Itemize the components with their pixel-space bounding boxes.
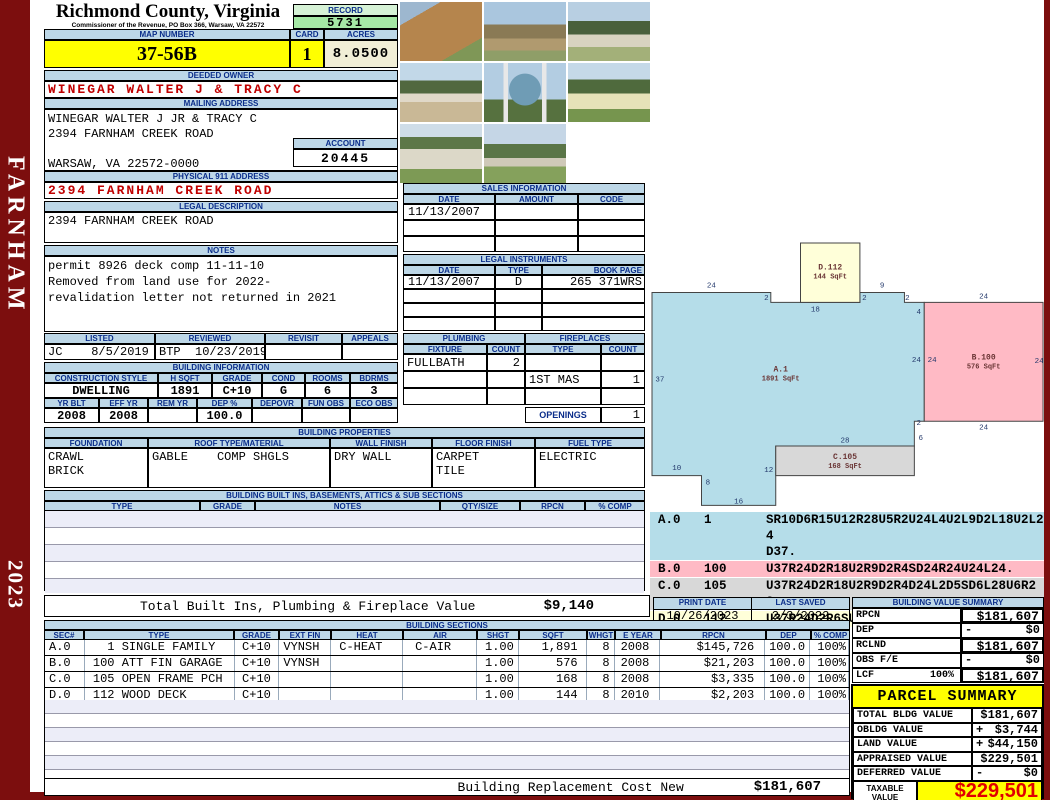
fireplace-row bbox=[525, 354, 645, 371]
notes-header: NOTES bbox=[44, 245, 398, 256]
parcel-summary-rows: TOTAL BLDG VALUE $181,607 OBLDG VALUE + … bbox=[853, 708, 1042, 781]
sales-amount bbox=[495, 220, 578, 236]
svg-text:24: 24 bbox=[979, 425, 989, 433]
sketch-code-text: SR10D6R15U12R28U5R2U24L4U2L9D2L18U2L24 D… bbox=[766, 512, 1044, 560]
instrument-type bbox=[495, 289, 542, 303]
instrument-date bbox=[403, 289, 495, 303]
review-value-cell: BTP 10/23/2019 bbox=[155, 344, 265, 360]
building-info-row2-headers: YR BLT EFF YR REM YR DEP % DEPOVR FUN OB… bbox=[44, 398, 398, 408]
built-ins-header: BUILDING BUILT INS, BASEMENTS, ATTICS & … bbox=[44, 490, 645, 501]
section-eyear: 2008 bbox=[615, 640, 661, 655]
building-section-row: A.0 1 SINGLE FAMILY C+10 VYNSH C-HEAT C-… bbox=[45, 640, 849, 656]
svg-text:12: 12 bbox=[764, 467, 773, 475]
parcel-row-label: APPRAISED VALUE bbox=[853, 752, 972, 767]
photo-thumbnail[interactable] bbox=[400, 124, 482, 183]
section-shgt: 1.00 bbox=[477, 672, 519, 687]
section-sqft: 1,891 bbox=[519, 640, 587, 655]
legal-description-header: LEGAL DESCRIPTION bbox=[44, 201, 398, 212]
notes-line: Removed from land use for 2022- bbox=[48, 275, 397, 291]
building-info-value-cell bbox=[252, 408, 302, 423]
year-label: 2023 bbox=[0, 530, 30, 640]
building-info-value-cell: 100.0 bbox=[197, 408, 252, 423]
svg-text:1891 SqFt: 1891 SqFt bbox=[762, 376, 800, 384]
sales-code bbox=[578, 236, 645, 252]
building-info-value-cell bbox=[302, 408, 350, 423]
section-comp: 100% bbox=[810, 656, 849, 671]
built-ins-header-cell: NOTES bbox=[255, 501, 440, 511]
sales-code bbox=[578, 220, 645, 236]
instruments-row bbox=[403, 317, 645, 331]
built-ins-header-cell: GRADE bbox=[200, 501, 255, 511]
plumbing-fixture: FULLBATH bbox=[403, 354, 487, 371]
section-whgt: 8 bbox=[587, 640, 615, 655]
sales-header-cell: CODE bbox=[578, 194, 645, 204]
sales-row bbox=[403, 220, 645, 236]
acres-header: ACRES bbox=[324, 29, 398, 40]
review-value-cell: JC 8/5/2019 bbox=[44, 344, 155, 360]
section-rpcn: $3,335 bbox=[660, 672, 765, 687]
value-summary-pct: 100% bbox=[930, 669, 954, 682]
sales-information-header: SALES INFORMATION bbox=[403, 183, 645, 194]
fixture-header: FIXTURE bbox=[403, 344, 487, 354]
value-summary-label: DEP bbox=[856, 624, 874, 637]
building-info-value-cell: 3 bbox=[350, 383, 398, 398]
review-header-cell: REVISIT bbox=[265, 333, 342, 344]
section-shgt: 1.00 bbox=[477, 640, 519, 655]
instruments-row bbox=[403, 289, 645, 303]
map-number-header: MAP NUMBER bbox=[44, 29, 290, 40]
building-info-row1-values: DWELLING 1891 C+10 G 6 3 bbox=[44, 383, 398, 398]
building-value-summary-rows: RPCN $181,607 DEP - $0 RCLND bbox=[852, 608, 1044, 683]
building-value-summary-header: BUILDING VALUE SUMMARY bbox=[852, 597, 1044, 608]
instrument-date bbox=[403, 303, 495, 317]
acres-value: 8.0500 bbox=[324, 40, 398, 68]
section-grade: C+10 bbox=[235, 656, 280, 671]
value-summary-row: OBS F/E - $0 bbox=[852, 653, 1044, 668]
svg-text:2: 2 bbox=[764, 295, 769, 303]
value-summary-amount: $181,607 bbox=[977, 640, 1039, 651]
account-value: 20445 bbox=[293, 149, 398, 167]
building-info-value-cell bbox=[148, 408, 197, 423]
physical-address-header: PHYSICAL 911 ADDRESS bbox=[44, 171, 398, 182]
svg-text:24: 24 bbox=[912, 357, 922, 365]
section-id: B.0 bbox=[45, 656, 85, 671]
section-extfin bbox=[279, 672, 331, 687]
built-ins-header-cell: % COMP bbox=[585, 501, 645, 511]
legal-instruments-header: LEGAL INSTRUMENTS bbox=[403, 254, 645, 265]
svg-text:24: 24 bbox=[707, 283, 717, 291]
sales-date bbox=[403, 236, 495, 252]
county-title-block: Richmond County, Virginia Commissioner o… bbox=[44, 2, 292, 29]
review-header-cell: LISTED bbox=[44, 333, 155, 344]
building-info-value-cell bbox=[350, 408, 398, 423]
building-sections-header-cell: % COMP bbox=[811, 630, 850, 640]
building-sketch: A.11891 SqFtB.100576 SqFtC.105168 SqFtD.… bbox=[650, 186, 1044, 512]
parcel-row-label: LAND VALUE bbox=[853, 737, 972, 752]
built-ins-total-row: Total Built Ins, Plumbing & Fireplace Va… bbox=[44, 595, 650, 617]
building-sections-header-cell: HEAT bbox=[331, 630, 403, 640]
value-summary-label: OBS F/E bbox=[856, 654, 898, 667]
svg-text:168 SqFt: 168 SqFt bbox=[828, 463, 862, 471]
section-heat bbox=[331, 656, 403, 671]
section-extfin: VYNSH bbox=[279, 656, 331, 671]
sketch-code-num: 1 bbox=[704, 512, 766, 560]
section-comp: 100% bbox=[810, 672, 849, 687]
parcel-row-amount: $3,744 bbox=[995, 724, 1038, 737]
built-ins-col-headers: TYPE GRADE NOTES QTY/SIZE RPCN % COMP bbox=[44, 501, 645, 511]
svg-text:D.112: D.112 bbox=[818, 264, 842, 273]
building-sections-col-headers: SEC# TYPE GRADE EXT FIN HEAT AIR SHGT SQ… bbox=[44, 630, 850, 640]
building-properties-header-cell: FUEL TYPE bbox=[535, 438, 645, 448]
section-type: 105 OPEN FRAME PCH bbox=[85, 672, 235, 687]
parcel-row-sign: + bbox=[976, 738, 983, 751]
building-sections-header-cell: SHGT bbox=[477, 630, 519, 640]
building-properties-header: BUILDING PROPERTIES bbox=[44, 427, 645, 438]
parcel-summary-header: PARCEL SUMMARY bbox=[853, 686, 1042, 708]
review-header-cell: REVIEWED bbox=[155, 333, 265, 344]
property-record-card: FARNHAM 2023 Richmond County, Virginia C… bbox=[0, 0, 1050, 800]
fireplace-type-header: TYPE bbox=[525, 344, 601, 354]
fireplace-count bbox=[601, 388, 645, 405]
taxable-value-amount: $229,501 bbox=[955, 780, 1041, 800]
plumbing-count bbox=[487, 388, 525, 405]
instruments-row bbox=[403, 303, 645, 317]
review-value-cell bbox=[265, 344, 342, 360]
notes-line: permit 8926 deck comp 11-11-10 bbox=[48, 259, 397, 275]
building-info-header-cell: H SQFT bbox=[158, 373, 212, 383]
photo-thumbnail[interactable] bbox=[568, 2, 650, 61]
plumbing-rows: FULLBATH 2 bbox=[403, 354, 525, 405]
svg-text:10: 10 bbox=[672, 465, 682, 473]
building-info-row2-values: 2008 2008 100.0 bbox=[44, 408, 398, 423]
building-sections-rows: A.0 1 SINGLE FAMILY C+10 VYNSH C-HEAT C-… bbox=[44, 640, 850, 704]
parcel-summary: PARCEL SUMMARY TOTAL BLDG VALUE $181,607… bbox=[851, 684, 1044, 799]
deeded-owner-header: DEEDED OWNER bbox=[44, 70, 398, 81]
photo-thumbnail[interactable] bbox=[400, 2, 482, 61]
section-rpcn: $145,726 bbox=[660, 640, 765, 655]
building-info-header-cell: DEPOVR bbox=[252, 398, 302, 408]
svg-text:4: 4 bbox=[917, 309, 922, 317]
physical-address-value: 2394 FARNHAM CREEK ROAD bbox=[44, 182, 398, 199]
building-properties-header-cell: FOUNDATION bbox=[44, 438, 148, 448]
fireplace-count: 1 bbox=[601, 371, 645, 388]
section-extfin: VYNSH bbox=[279, 640, 331, 655]
building-info-value-cell: 2008 bbox=[99, 408, 148, 423]
svg-text:C.105: C.105 bbox=[833, 453, 857, 462]
plumbing-row bbox=[403, 371, 525, 388]
svg-text:18: 18 bbox=[811, 306, 820, 314]
openings-label: OPENINGS bbox=[525, 407, 601, 423]
building-info-value-cell: 6 bbox=[305, 383, 350, 398]
section-whgt: 8 bbox=[587, 656, 615, 671]
openings-value: 1 bbox=[601, 407, 645, 423]
parcel-row-sign: - bbox=[976, 767, 983, 780]
instrument-date bbox=[403, 317, 495, 331]
photo-thumbnail[interactable] bbox=[568, 63, 650, 122]
building-info-header-cell: DEP % bbox=[197, 398, 252, 408]
building-info-header-cell: COND bbox=[262, 373, 305, 383]
notes-block: permit 8926 deck comp 11-11-10 Removed f… bbox=[44, 256, 398, 332]
sketch-code-row: B.0 100 U37R24D2R18U2R9D2R4SD24R24U24L24… bbox=[650, 561, 1044, 578]
sketch-code-num: 100 bbox=[704, 561, 766, 577]
instruments-header-cell: BOOK PAGE bbox=[542, 265, 645, 275]
building-section-row: B.0 100 ATT FIN GARAGE C+10 VYNSH 1.00 5… bbox=[45, 656, 849, 672]
parcel-row-label: OBLDG VALUE bbox=[853, 723, 972, 738]
section-heat: C-HEAT bbox=[331, 640, 403, 655]
foundation-value: CRAWL BRICK bbox=[44, 448, 148, 488]
district-label: FARNHAM bbox=[0, 100, 30, 370]
parcel-row-amount: $229,501 bbox=[980, 753, 1038, 766]
instruments-header-cell: DATE bbox=[403, 265, 495, 275]
parcel-summary-row: LAND VALUE + $44,150 bbox=[853, 737, 1042, 752]
mailing-address-header: MAILING ADDRESS bbox=[44, 98, 398, 109]
value-summary-label: RCLND bbox=[856, 639, 886, 652]
section-whgt: 8 bbox=[587, 672, 615, 687]
count-header: COUNT bbox=[487, 344, 525, 354]
fireplaces-header: FIREPLACES bbox=[525, 333, 645, 344]
building-sections-header-cell: E YEAR bbox=[615, 630, 661, 640]
section-eyear: 2008 bbox=[615, 672, 661, 687]
section-id: A.0 bbox=[45, 640, 85, 655]
building-sections-header-cell: RPCN bbox=[661, 630, 766, 640]
record-value: 5731 bbox=[293, 16, 398, 29]
sales-amount bbox=[495, 204, 578, 220]
sales-header-cell: DATE bbox=[403, 194, 495, 204]
instrument-bookpage bbox=[542, 303, 645, 317]
fuel-type-value: ELECTRIC bbox=[535, 448, 645, 488]
parcel-row-amount: $0 bbox=[1024, 767, 1038, 780]
built-ins-total-value: $9,140 bbox=[544, 598, 594, 614]
instruments-col-headers: DATE TYPE BOOK PAGE bbox=[403, 265, 645, 275]
building-sections-header-cell: WHGT bbox=[587, 630, 615, 640]
value-summary-row: RPCN $181,607 bbox=[852, 608, 1044, 623]
building-sections-header-cell: GRADE bbox=[234, 630, 279, 640]
building-sections-header-cell: SEC# bbox=[44, 630, 84, 640]
section-air: C-AIR bbox=[403, 640, 477, 655]
svg-text:24: 24 bbox=[1035, 358, 1044, 366]
wall-finish-value: DRY WALL bbox=[330, 448, 432, 488]
fireplace-count bbox=[601, 354, 645, 371]
section-air bbox=[403, 672, 477, 687]
value-summary-label: RPCN bbox=[856, 609, 880, 622]
review-value-cell bbox=[342, 344, 398, 360]
svg-text:144 SqFt: 144 SqFt bbox=[813, 274, 847, 282]
photo-thumbnail[interactable] bbox=[484, 124, 566, 183]
review-values: JC 8/5/2019 BTP 10/23/2019 bbox=[44, 344, 398, 360]
built-ins-header-cell: RPCN bbox=[520, 501, 585, 511]
print-date-value: 10/26/2023 bbox=[654, 610, 752, 620]
sketch-code-id: B.0 bbox=[650, 561, 704, 577]
mailing-address-line: WINEGAR WALTER J JR & TRACY C bbox=[48, 112, 397, 127]
building-information-header: BUILDING INFORMATION bbox=[44, 362, 398, 373]
parcel-summary-row: DEFERRED VALUE - $0 bbox=[853, 766, 1042, 781]
section-type: 1 SINGLE FAMILY bbox=[85, 640, 235, 655]
svg-text:9: 9 bbox=[880, 283, 885, 291]
instruments-header-cell: TYPE bbox=[495, 265, 542, 275]
building-sections-header-cell: EXT FIN bbox=[279, 630, 331, 640]
taxable-value-label: TAXABLE VALUE bbox=[853, 781, 917, 800]
fireplace-type bbox=[525, 354, 601, 371]
building-info-row1-headers: CONSTRUCTION STYLE H SQFT GRADE COND ROO… bbox=[44, 373, 398, 383]
instrument-type bbox=[495, 317, 542, 331]
value-summary-label: LCF bbox=[856, 669, 874, 682]
svg-text:2: 2 bbox=[862, 295, 867, 303]
building-sections-header-cell: TYPE bbox=[84, 630, 234, 640]
section-rpcn: $21,203 bbox=[660, 656, 765, 671]
instrument-date: 11/13/2007 bbox=[403, 275, 495, 289]
sales-amount bbox=[495, 236, 578, 252]
building-sections-header-cell: DEP bbox=[766, 630, 811, 640]
last-saved-value: 2/3/2022 bbox=[752, 610, 849, 620]
photo-thumbnail[interactable] bbox=[400, 63, 482, 122]
sketch-code-text: U37R24D2R18U2R9D2R4SD24R24U24L24. bbox=[766, 561, 1044, 577]
building-info-header-cell: ROOMS bbox=[305, 373, 350, 383]
building-info-value-cell: 2008 bbox=[44, 408, 99, 423]
sketch-code-id: A.0 bbox=[650, 512, 704, 560]
value-summary-amount: $181,607 bbox=[977, 610, 1039, 621]
floor-finish-value: CARPET TILE bbox=[432, 448, 535, 488]
svg-text:8: 8 bbox=[706, 480, 711, 488]
fireplace-type: 1ST MAS bbox=[525, 371, 601, 388]
value-summary-row: RCLND $181,607 bbox=[852, 638, 1044, 653]
built-ins-total-label: Total Built Ins, Plumbing & Fireplace Va… bbox=[140, 599, 475, 614]
map-number-value: 37-56B bbox=[44, 40, 290, 68]
plumbing-row: FULLBATH 2 bbox=[403, 354, 525, 371]
instruments-row: 11/13/2007 D 265 371WRS bbox=[403, 275, 645, 289]
deeded-owner-value: WINEGAR WALTER J & TRACY C bbox=[44, 81, 398, 98]
building-info-value-cell: 1891 bbox=[158, 383, 212, 398]
section-heat bbox=[331, 672, 403, 687]
instrument-bookpage: 265 371WRS bbox=[542, 275, 645, 289]
replacement-cost-label: Building Replacement Cost New bbox=[458, 780, 684, 795]
building-info-value-cell: C+10 bbox=[212, 383, 262, 398]
building-info-value-cell: DWELLING bbox=[44, 383, 158, 398]
section-sqft: 168 bbox=[519, 672, 587, 687]
instrument-bookpage bbox=[542, 317, 645, 331]
fireplace-row: 1ST MAS 1 bbox=[525, 371, 645, 388]
right-border bbox=[1044, 0, 1050, 800]
building-properties-values: CRAWL BRICK GABLE COMP SHGLS DRY WALL CA… bbox=[44, 448, 645, 488]
photo-grid bbox=[400, 2, 650, 183]
plumbing-row bbox=[403, 388, 525, 405]
section-dep: 100.0 bbox=[765, 656, 810, 671]
value-summary-row: LCF 100% $181,607 bbox=[852, 668, 1044, 683]
plumbing-count bbox=[487, 371, 525, 388]
instrument-bookpage bbox=[542, 289, 645, 303]
roof-type: GABLE bbox=[152, 450, 188, 487]
card-value: 1 bbox=[290, 40, 324, 68]
roof-value: GABLE COMP SHGLS bbox=[148, 448, 330, 488]
page-subtitle: Commissioner of the Revenue, PO Box 366,… bbox=[44, 22, 292, 29]
building-info-header-cell: GRADE bbox=[212, 373, 262, 383]
section-dep: 100.0 bbox=[765, 640, 810, 655]
svg-text:2: 2 bbox=[917, 420, 922, 428]
svg-text:16: 16 bbox=[734, 498, 744, 506]
building-info-header-cell: YR BLT bbox=[44, 398, 99, 408]
page-title: Richmond County, Virginia bbox=[44, 2, 292, 22]
replacement-cost-row: Building Replacement Cost New $181,607 bbox=[44, 778, 850, 796]
parcel-summary-row: TOTAL BLDG VALUE $181,607 bbox=[853, 708, 1042, 723]
building-info-header-cell: EFF YR bbox=[99, 398, 148, 408]
building-info-header-cell: BDRMS bbox=[350, 373, 398, 383]
replacement-cost-value: $181,607 bbox=[754, 779, 821, 795]
sales-row bbox=[403, 236, 645, 252]
empty-section-rows bbox=[44, 700, 850, 778]
building-info-header-cell: ECO OBS bbox=[350, 398, 398, 408]
section-sqft: 576 bbox=[519, 656, 587, 671]
value-summary-row: DEP - $0 bbox=[852, 623, 1044, 638]
parcel-row-label: TOTAL BLDG VALUE bbox=[853, 708, 972, 723]
built-ins-header-cell: TYPE bbox=[44, 501, 200, 511]
value-summary-amount: $0 bbox=[1026, 624, 1040, 637]
account-header: ACCOUNT bbox=[293, 138, 398, 149]
section-id: C.0 bbox=[45, 672, 85, 687]
openings-row: OPENINGS 1 bbox=[525, 407, 645, 423]
value-summary-sign: - bbox=[965, 654, 972, 667]
card-header: CARD bbox=[290, 29, 324, 40]
section-grade: C+10 bbox=[235, 640, 280, 655]
plumbing-fixture bbox=[403, 371, 487, 388]
plumbing-fireplaces-col-headers: FIXTURE COUNT TYPE COUNT bbox=[403, 344, 645, 354]
building-info-header-cell: REM YR bbox=[148, 398, 197, 408]
instruments-rows: 11/13/2007 D 265 371WRS bbox=[403, 275, 645, 331]
building-info-value-cell: G bbox=[262, 383, 305, 398]
building-properties-header-cell: FLOOR FINISH bbox=[432, 438, 535, 448]
legal-description-value: 2394 FARNHAM CREEK ROAD bbox=[44, 212, 398, 243]
building-properties-header-cell: ROOF TYPE/MATERIAL bbox=[148, 438, 330, 448]
svg-text:576 SqFt: 576 SqFt bbox=[967, 363, 1001, 371]
svg-text:A.1: A.1 bbox=[773, 366, 788, 375]
parcel-row-amount: $44,150 bbox=[988, 738, 1038, 751]
building-info-header-cell: CONSTRUCTION STYLE bbox=[44, 373, 158, 383]
section-type: 100 ATT FIN GARAGE bbox=[85, 656, 235, 671]
sales-header-cell: AMOUNT bbox=[495, 194, 578, 204]
review-header-cell: APPEALS bbox=[342, 333, 398, 344]
built-ins-header-cell: QTY/SIZE bbox=[440, 501, 520, 511]
svg-text:6: 6 bbox=[919, 435, 924, 443]
sales-col-headers: DATE AMOUNT CODE bbox=[403, 194, 645, 204]
sales-rows: 11/13/2007 bbox=[403, 204, 645, 252]
section-comp: 100% bbox=[810, 640, 849, 655]
sales-row: 11/13/2007 bbox=[403, 204, 645, 220]
value-summary-amount: $181,607 bbox=[977, 670, 1039, 681]
parcel-row-amount: $181,607 bbox=[980, 709, 1038, 722]
print-saved-block: PRINT DATE 10/26/2023 LAST SAVED 2/3/202… bbox=[653, 597, 850, 621]
fireplace-row bbox=[525, 388, 645, 405]
built-ins-empty-rows bbox=[44, 511, 645, 591]
parcel-row-sign: + bbox=[976, 724, 983, 737]
review-headers: LISTED REVIEWED REVISIT APPEALS bbox=[44, 333, 398, 344]
section-eyear: 2008 bbox=[615, 656, 661, 671]
building-properties-col-headers: FOUNDATION ROOF TYPE/MATERIAL WALL FINIS… bbox=[44, 438, 645, 448]
svg-text:2: 2 bbox=[905, 295, 910, 303]
photo-thumbnail[interactable] bbox=[484, 2, 566, 61]
svg-text:28: 28 bbox=[841, 437, 850, 445]
photo-thumbnail[interactable] bbox=[484, 63, 566, 122]
building-info-header-cell: FUN OBS bbox=[302, 398, 350, 408]
parcel-summary-row: APPRAISED VALUE $229,501 bbox=[853, 752, 1042, 767]
roof-material: COMP SHGLS bbox=[217, 450, 289, 487]
building-sections-header: BUILDING SECTIONS bbox=[44, 620, 850, 630]
fireplace-type bbox=[525, 388, 601, 405]
svg-text:24: 24 bbox=[979, 293, 989, 301]
record-header: RECORD bbox=[293, 4, 398, 16]
section-dep: 100.0 bbox=[765, 672, 810, 687]
fireplace-rows: 1ST MAS 1 bbox=[525, 354, 645, 405]
building-sections-header-cell: AIR bbox=[403, 630, 477, 640]
sales-date: 11/13/2007 bbox=[403, 204, 495, 220]
sales-date bbox=[403, 220, 495, 236]
